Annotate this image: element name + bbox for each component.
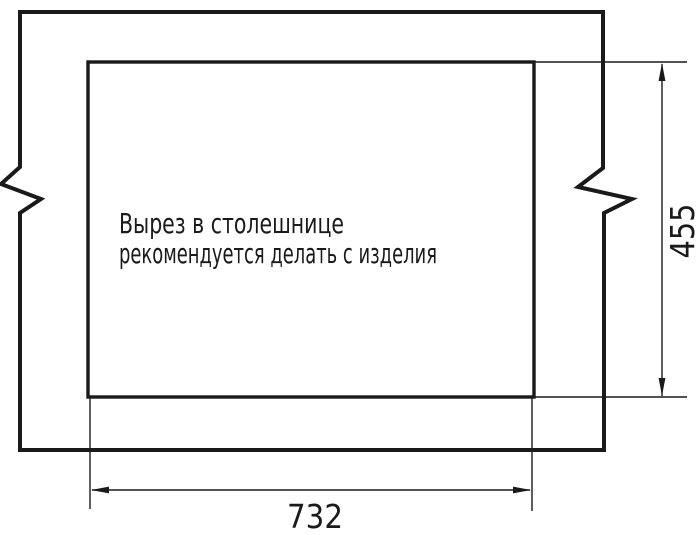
note-line-2: рекомендуется делать с изделия (119, 237, 437, 270)
width-dimension-label: 732 (287, 497, 343, 535)
cutout-dimension-drawing: 455 732 Вырез в столешнице рекомендуется… (0, 0, 700, 535)
dim-arrow-down-icon (659, 378, 666, 396)
dim-arrow-right-icon (513, 487, 531, 494)
dim-arrow-left-icon (91, 487, 109, 494)
note-line-1: Вырез в столешнице (119, 207, 344, 240)
height-dimension-label: 455 (663, 204, 700, 259)
technical-drawing-canvas: 455 732 Вырез в столешнице рекомендуется… (0, 0, 700, 535)
dim-arrow-up-icon (659, 63, 666, 81)
